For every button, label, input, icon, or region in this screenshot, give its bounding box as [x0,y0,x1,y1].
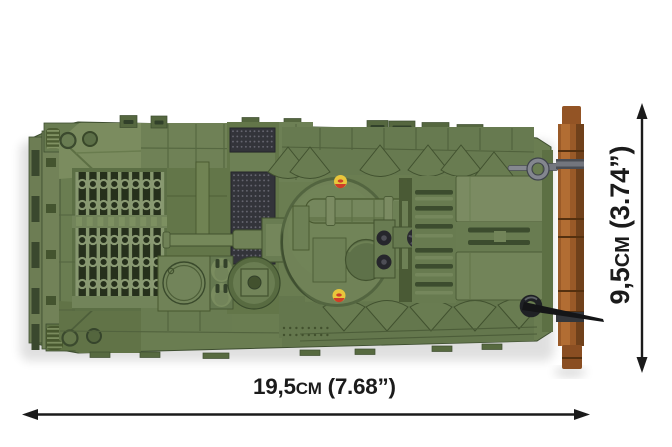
svg-text:9,5CM (3.74”): 9,5CM (3.74”) [605,146,635,305]
svg-text:19,5CM (7.68”): 19,5CM (7.68”) [253,374,396,399]
